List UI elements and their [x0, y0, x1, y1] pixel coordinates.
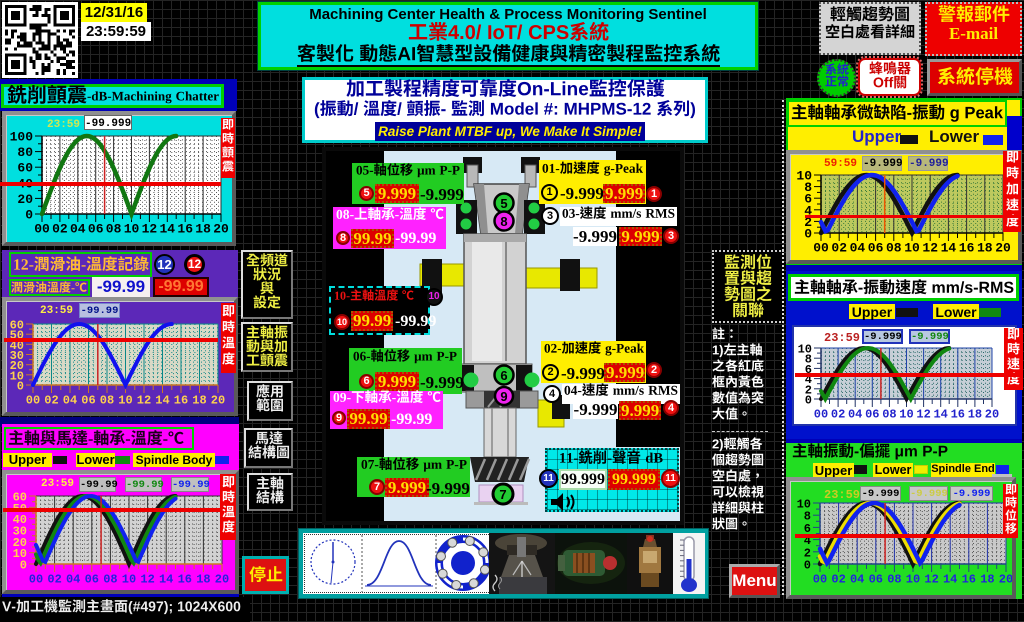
svg-text:20: 20: [999, 573, 1012, 587]
svg-text:20: 20: [211, 394, 225, 408]
svg-text:18: 18: [195, 222, 211, 237]
svg-text:80: 80: [17, 145, 33, 160]
svg-text:04: 04: [850, 241, 866, 256]
svg-text:18: 18: [192, 394, 206, 408]
svg-text:10: 10: [904, 241, 920, 256]
svg-text:6: 6: [500, 368, 507, 383]
svg-text:8: 8: [500, 214, 507, 229]
svg-text:0: 0: [17, 380, 24, 394]
svg-text:12: 12: [140, 573, 154, 587]
svg-text:0: 0: [25, 208, 33, 223]
svg-text:9: 9: [500, 389, 507, 404]
svg-text:10: 10: [124, 222, 140, 237]
svg-text:18: 18: [968, 408, 982, 422]
svg-text:06: 06: [869, 573, 883, 587]
svg-text:10: 10: [118, 394, 132, 408]
svg-text:02: 02: [831, 241, 847, 256]
svg-text:06: 06: [81, 394, 95, 408]
svg-text:02: 02: [831, 408, 845, 422]
svg-text:02: 02: [831, 573, 845, 587]
svg-text:7: 7: [499, 487, 506, 502]
svg-text:100: 100: [10, 130, 34, 145]
svg-text:16: 16: [178, 573, 192, 587]
svg-text:02: 02: [52, 222, 68, 237]
svg-text:20: 20: [17, 192, 33, 207]
svg-text:18: 18: [196, 573, 210, 587]
svg-text:12: 12: [142, 222, 158, 237]
svg-text:00: 00: [813, 573, 827, 587]
svg-text:00: 00: [34, 222, 50, 237]
svg-text:0: 0: [20, 559, 27, 573]
svg-text:0: 0: [804, 559, 811, 573]
svg-text:06: 06: [88, 222, 104, 237]
svg-text:60: 60: [17, 161, 33, 176]
svg-text:14: 14: [159, 222, 175, 237]
svg-text:14: 14: [941, 241, 957, 256]
svg-text:10: 10: [899, 408, 913, 422]
svg-text:16: 16: [962, 573, 976, 587]
svg-text:08: 08: [100, 394, 114, 408]
svg-text:10: 10: [906, 573, 920, 587]
svg-text:5: 5: [500, 196, 507, 211]
svg-text:00: 00: [29, 573, 43, 587]
svg-text:0: 0: [805, 394, 812, 408]
svg-text:08: 08: [106, 222, 122, 237]
svg-text:08: 08: [103, 573, 117, 587]
svg-text:06: 06: [865, 408, 879, 422]
svg-text:04: 04: [66, 573, 80, 587]
svg-text:04: 04: [850, 573, 864, 587]
svg-text:14: 14: [943, 573, 957, 587]
svg-text:08: 08: [882, 408, 896, 422]
svg-text:12: 12: [924, 573, 938, 587]
svg-text:14: 14: [159, 573, 173, 587]
svg-text:16: 16: [951, 408, 965, 422]
svg-text:00: 00: [814, 408, 828, 422]
svg-text:20: 20: [215, 573, 229, 587]
svg-text:10: 10: [122, 573, 136, 587]
svg-text:06: 06: [85, 573, 99, 587]
svg-text:00: 00: [813, 241, 829, 256]
svg-text:04: 04: [63, 394, 77, 408]
svg-text:12: 12: [922, 241, 938, 256]
svg-text:18: 18: [977, 241, 993, 256]
svg-text:20: 20: [985, 408, 999, 422]
svg-text:12: 12: [137, 394, 151, 408]
svg-text:18: 18: [980, 573, 994, 587]
svg-text:16: 16: [959, 241, 975, 256]
svg-text:08: 08: [886, 241, 902, 256]
svg-text:04: 04: [70, 222, 86, 237]
svg-text:20: 20: [995, 241, 1011, 256]
svg-text:14: 14: [155, 394, 169, 408]
svg-text:08: 08: [887, 573, 901, 587]
svg-text:00: 00: [26, 394, 40, 408]
svg-text:14: 14: [933, 408, 947, 422]
svg-text:16: 16: [177, 222, 193, 237]
svg-text:20: 20: [213, 222, 229, 237]
svg-text:02: 02: [47, 573, 61, 587]
svg-text:0: 0: [804, 227, 812, 242]
svg-text:06: 06: [868, 241, 884, 256]
svg-text:12: 12: [916, 408, 930, 422]
svg-text:04: 04: [848, 408, 862, 422]
svg-text:02: 02: [44, 394, 58, 408]
svg-text:16: 16: [174, 394, 188, 408]
